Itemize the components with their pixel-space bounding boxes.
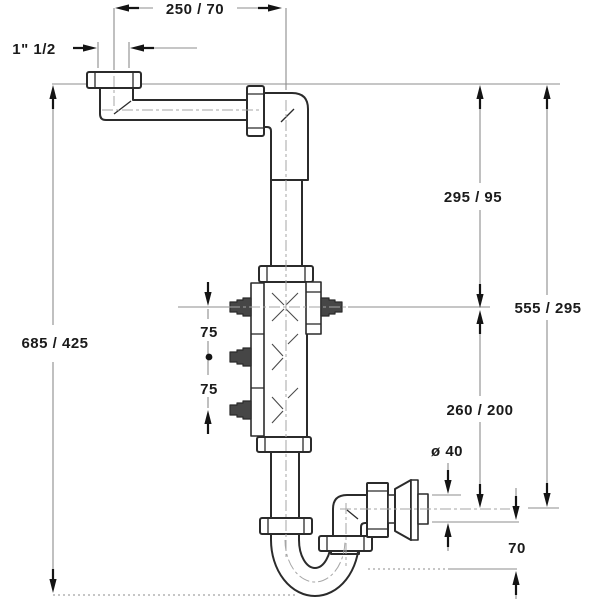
outlet-union-nut [367, 483, 388, 537]
manifold-right-flange [306, 282, 321, 334]
technical-drawing-page: 250 / 70 1" 1/2 685 / 425 295 / 95 555 /… [0, 0, 600, 600]
inlet-pipe [100, 88, 248, 120]
top-coupling-flange [247, 86, 264, 136]
wall-funnel [395, 480, 411, 540]
chain-dimension-dot [206, 354, 213, 361]
dimension-label-trap-depth: 70 [508, 540, 526, 557]
wall-funnel-rim [411, 480, 418, 540]
hose-barb-left-3 [230, 401, 251, 419]
dimension-label-overall-height: 685 / 425 [21, 335, 88, 352]
dimension-label-upper-right: 295 / 95 [444, 189, 502, 206]
outlet-elbow [333, 495, 368, 536]
dimension-label-outlet-diameter: ø 40 [431, 443, 463, 460]
manifold-left-wing [251, 283, 264, 436]
vertical-pipe-lower [271, 452, 299, 519]
dimension-label-total-right: 555 / 295 [514, 300, 581, 317]
dimension-label-branch-spacing-lower: 75 [200, 381, 218, 398]
hose-barb-left-2 [230, 348, 251, 366]
siphon-dimension-drawing: 250 / 70 1" 1/2 685 / 425 295 / 95 555 /… [0, 0, 600, 600]
dimension-label-top-offset: 250 / 70 [166, 1, 224, 18]
dimension-label-lower-right: 260 / 200 [446, 402, 513, 419]
dimension-label-branch-spacing-upper: 75 [200, 324, 218, 341]
flange-coupling-2 [257, 437, 311, 452]
pipe-assembly [87, 72, 428, 596]
dimension-label-inlet-thread: 1" 1/2 [12, 41, 55, 58]
